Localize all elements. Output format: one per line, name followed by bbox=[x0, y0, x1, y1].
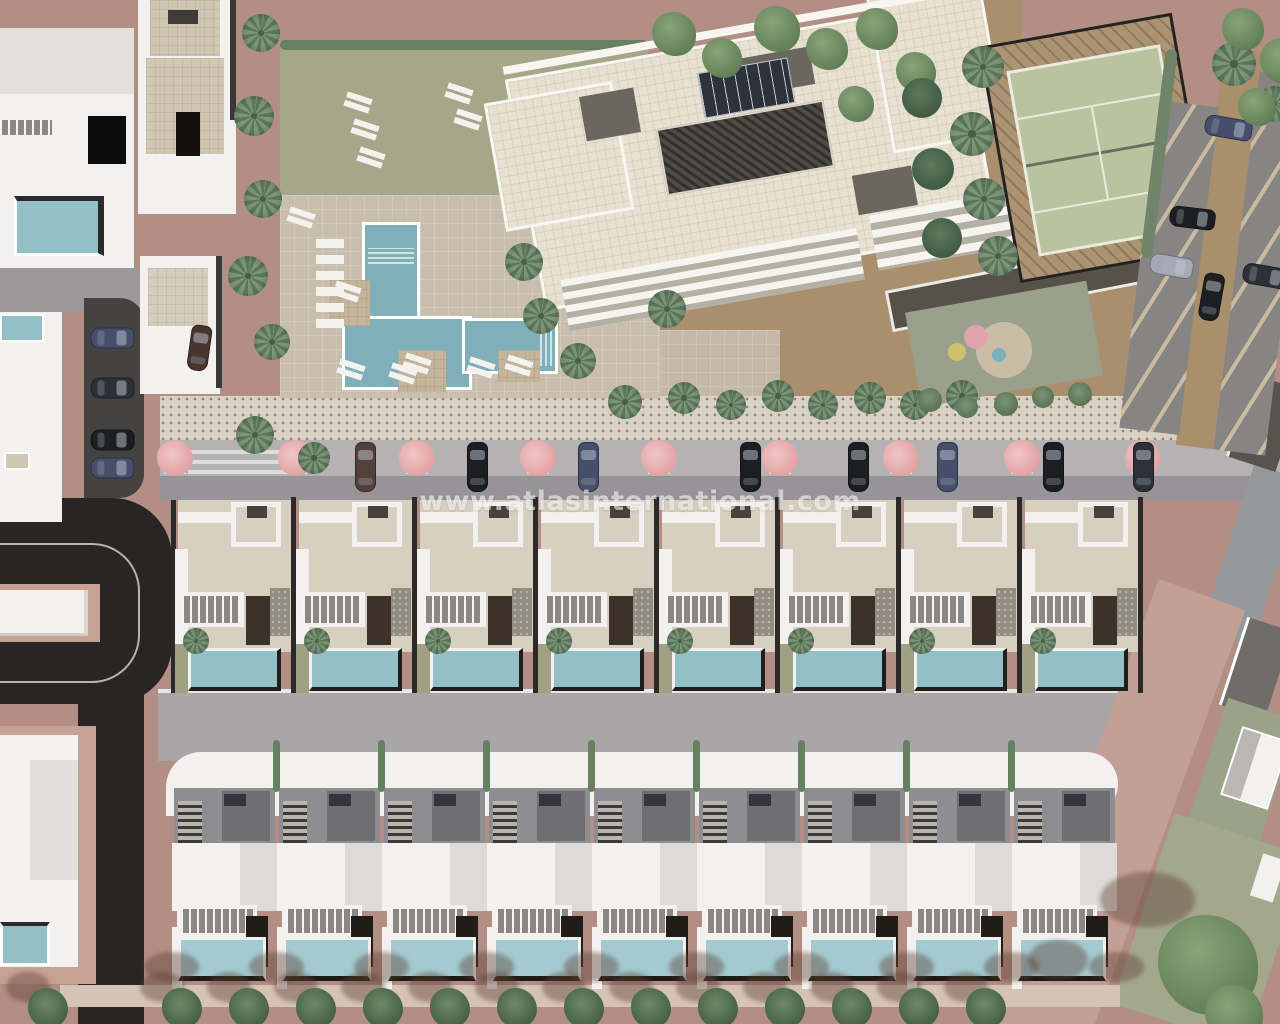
palm-tree-icon bbox=[963, 178, 1005, 220]
cypress-tree-icon bbox=[922, 218, 962, 258]
cypress-tree-icon bbox=[902, 78, 942, 118]
car-rear-window bbox=[98, 331, 105, 346]
palm-tree-icon bbox=[854, 382, 886, 414]
car-rear-window bbox=[743, 478, 758, 485]
villa-door bbox=[730, 596, 754, 645]
villa-stairs bbox=[598, 801, 622, 843]
tree-shadow bbox=[1100, 872, 1195, 927]
street-empty-bay-stripes bbox=[188, 446, 288, 474]
villa-door bbox=[1093, 596, 1117, 645]
hedge-separator bbox=[798, 740, 805, 792]
villa-stone-accent bbox=[996, 588, 1016, 636]
villa-pool bbox=[1035, 648, 1128, 691]
bush-icon bbox=[918, 388, 942, 412]
villa-garden-strip bbox=[780, 644, 793, 693]
villa-door bbox=[367, 596, 391, 645]
middle-row-villa bbox=[780, 497, 901, 693]
palm-tree-icon bbox=[667, 628, 693, 654]
communal-pool-upper bbox=[362, 222, 420, 324]
villa-door bbox=[246, 596, 270, 645]
car-icon bbox=[467, 442, 488, 492]
playground-equipment bbox=[992, 348, 1006, 362]
flowering-tree-icon bbox=[883, 440, 919, 476]
middle-road bbox=[158, 693, 1170, 761]
villa-body-shade bbox=[870, 843, 907, 911]
tree-icon bbox=[652, 12, 696, 56]
car-icon bbox=[355, 442, 376, 492]
car-icon bbox=[1043, 442, 1064, 492]
villa-balcony bbox=[178, 592, 244, 627]
car-windshield bbox=[940, 450, 955, 460]
villa-balcony bbox=[662, 592, 728, 627]
car-rear-window bbox=[1210, 118, 1219, 134]
villa-balcony bbox=[1017, 905, 1097, 937]
villa-door bbox=[609, 596, 633, 645]
flowering-tree-icon bbox=[641, 440, 677, 476]
villa-stairs bbox=[1018, 801, 1042, 843]
villa-body-shade bbox=[240, 843, 277, 911]
tree-icon bbox=[1222, 8, 1264, 50]
palm-tree-icon bbox=[298, 442, 330, 474]
palm-tree-icon bbox=[242, 14, 280, 52]
palm-tree-icon bbox=[546, 628, 572, 654]
car-rear-window bbox=[851, 478, 866, 485]
villa-balcony bbox=[420, 592, 486, 627]
car-rear-window bbox=[98, 433, 105, 448]
palm-tree-icon bbox=[523, 298, 559, 334]
palm-tree-icon bbox=[183, 628, 209, 654]
villa-skylight bbox=[224, 794, 246, 806]
villa-balcony bbox=[299, 592, 365, 627]
car-rear-window bbox=[1155, 256, 1164, 272]
palm-tree-icon bbox=[505, 243, 543, 281]
villa-skylight bbox=[539, 794, 561, 806]
villa-stone-accent bbox=[633, 588, 653, 636]
car-rear-window bbox=[358, 478, 373, 485]
car-windshield bbox=[851, 450, 866, 460]
tree-icon bbox=[702, 38, 742, 78]
villa-stair-opening bbox=[247, 506, 267, 518]
flowering-tree-icon bbox=[157, 440, 193, 476]
villa-stairs bbox=[388, 801, 412, 843]
tree-shadow bbox=[1089, 952, 1144, 982]
car-rear-window bbox=[1046, 478, 1061, 485]
palm-tree-icon bbox=[668, 382, 700, 414]
villa-balcony bbox=[597, 905, 677, 937]
villa-stairs bbox=[283, 801, 307, 843]
bush-icon bbox=[956, 396, 978, 418]
villa-balcony bbox=[492, 905, 572, 937]
palm-tree-icon bbox=[228, 256, 268, 296]
flowering-tree-icon bbox=[520, 440, 556, 476]
villa-stone-accent bbox=[1117, 588, 1137, 636]
villa-party-wall bbox=[1138, 497, 1143, 693]
palm-tree-icon bbox=[950, 112, 994, 156]
villa-skylight bbox=[854, 794, 876, 806]
palm-tree-icon bbox=[608, 385, 642, 419]
car-icon bbox=[91, 430, 135, 451]
villa-door bbox=[851, 596, 875, 645]
middle-row-villa bbox=[175, 497, 296, 693]
playground-equipment bbox=[948, 343, 966, 361]
car-windshield bbox=[193, 332, 209, 344]
palm-tree-icon bbox=[648, 290, 686, 328]
car-rear-window bbox=[470, 478, 485, 485]
car-icon bbox=[1133, 442, 1154, 492]
bush-icon bbox=[1068, 382, 1092, 406]
beige-annex-roof bbox=[148, 268, 208, 326]
car-icon bbox=[848, 442, 869, 492]
villa-stone-accent bbox=[270, 588, 290, 636]
middle-row-villa bbox=[296, 497, 417, 693]
villa-balcony bbox=[912, 905, 992, 937]
villa-pool bbox=[793, 648, 886, 691]
flowering-tree-icon bbox=[1004, 440, 1040, 476]
villa-pool bbox=[914, 648, 1007, 691]
left-building-b-pool bbox=[0, 314, 44, 342]
island-building bbox=[0, 590, 88, 636]
villa-skylight bbox=[749, 794, 771, 806]
villa-balcony bbox=[783, 592, 849, 627]
car-windshield bbox=[1046, 450, 1061, 460]
flowering-tree-icon bbox=[762, 440, 798, 476]
apartment-courtyard-a bbox=[579, 88, 641, 142]
car-windshield bbox=[117, 331, 127, 346]
beige-building-window bbox=[168, 10, 198, 24]
villa-balcony bbox=[807, 905, 887, 937]
hedge-separator bbox=[588, 740, 595, 792]
villa-body-shade bbox=[345, 843, 382, 911]
car-icon bbox=[91, 458, 135, 479]
villa-balcony bbox=[177, 905, 257, 937]
car-windshield bbox=[117, 381, 127, 396]
aerial-render-scene: www.atlasinternational.com bbox=[0, 0, 1280, 1024]
villa-stone-accent bbox=[512, 588, 532, 636]
tree-icon bbox=[838, 86, 874, 122]
middle-row-villa bbox=[901, 497, 1022, 693]
bottom-left-house-shade bbox=[30, 760, 78, 880]
villa-stair-opening bbox=[368, 506, 388, 518]
villa-skylight bbox=[959, 794, 981, 806]
villa-pool bbox=[309, 648, 402, 691]
villa-garden-strip bbox=[175, 644, 188, 693]
hedge-separator bbox=[483, 740, 490, 792]
palm-tree-icon bbox=[425, 628, 451, 654]
middle-row-villa bbox=[538, 497, 659, 693]
villa-balcony bbox=[904, 592, 970, 627]
villa-body-shade bbox=[660, 843, 697, 911]
car-windshield bbox=[1205, 280, 1222, 292]
car-windshield bbox=[117, 461, 127, 476]
tree-icon bbox=[754, 6, 800, 52]
left-building-a-shade bbox=[0, 28, 134, 94]
hedge-separator bbox=[273, 740, 280, 792]
car-rear-window bbox=[940, 478, 955, 485]
car-windshield bbox=[470, 450, 485, 460]
palm-tree-icon bbox=[788, 628, 814, 654]
palm-tree-icon bbox=[1030, 628, 1056, 654]
car-rear-window bbox=[1201, 306, 1217, 315]
car-rear-window bbox=[1248, 266, 1257, 282]
car-rear-window bbox=[581, 478, 596, 485]
villa-body-shade bbox=[555, 843, 592, 911]
car-rear-window bbox=[98, 381, 105, 396]
bush-icon bbox=[1032, 386, 1054, 408]
palm-tree-icon bbox=[304, 628, 330, 654]
tree-icon bbox=[806, 28, 848, 70]
palm-tree-icon bbox=[560, 343, 596, 379]
hedge-separator bbox=[378, 740, 385, 792]
car-icon bbox=[91, 378, 135, 399]
villa-stone-accent bbox=[754, 588, 774, 636]
palm-tree-icon bbox=[909, 628, 935, 654]
palm-tree-icon bbox=[762, 380, 794, 412]
villa-garden-strip bbox=[538, 644, 551, 693]
villa-pool bbox=[672, 648, 765, 691]
watermark: www.atlasinternational.com bbox=[419, 486, 861, 517]
pool-steps bbox=[368, 248, 414, 264]
hedge-separator bbox=[1008, 740, 1015, 792]
car-windshield bbox=[1197, 211, 1209, 227]
car-icon bbox=[937, 442, 958, 492]
villa-garden-strip bbox=[901, 644, 914, 693]
villa-skylight bbox=[644, 794, 666, 806]
villa-balcony bbox=[282, 905, 362, 937]
car-icon bbox=[578, 442, 599, 492]
car-rear-window bbox=[98, 461, 105, 476]
tree-icon bbox=[1238, 88, 1276, 126]
hedge-separator bbox=[693, 740, 700, 792]
villa-stone-accent bbox=[875, 588, 895, 636]
car-windshield bbox=[1233, 122, 1245, 139]
villa-stairs bbox=[493, 801, 517, 843]
car-icon bbox=[91, 328, 135, 349]
villa-stairs bbox=[808, 801, 832, 843]
palm-tree-icon bbox=[978, 236, 1018, 276]
villa-stairs bbox=[178, 801, 202, 843]
car-windshield bbox=[743, 450, 758, 460]
car-windshield bbox=[358, 450, 373, 460]
car-windshield bbox=[1174, 259, 1186, 276]
villa-balcony bbox=[387, 905, 467, 937]
bush-icon bbox=[994, 392, 1018, 416]
villa-stair-opening bbox=[973, 506, 993, 518]
car-rear-window bbox=[1136, 478, 1151, 485]
beige-building-door bbox=[176, 112, 200, 156]
cypress-tree-icon bbox=[912, 148, 954, 190]
left-building-a-pool bbox=[14, 196, 104, 256]
villa-balcony bbox=[1025, 592, 1091, 627]
car-windshield bbox=[581, 450, 596, 460]
left-building-b bbox=[0, 312, 62, 522]
palm-tree-icon bbox=[808, 390, 838, 420]
middle-row-villa bbox=[659, 497, 780, 693]
palm-tree-icon bbox=[234, 96, 274, 136]
playground-equipment bbox=[964, 325, 988, 349]
hedge-separator bbox=[903, 740, 910, 792]
villa-garden-strip bbox=[659, 644, 672, 693]
car-icon bbox=[740, 442, 761, 492]
tree-icon bbox=[856, 8, 898, 50]
beige-annex-gap bbox=[216, 256, 222, 388]
tree-shadow bbox=[1028, 940, 1088, 980]
villa-pool bbox=[551, 648, 644, 691]
villa-stairs bbox=[703, 801, 727, 843]
villa-door bbox=[972, 596, 996, 645]
villa-balcony bbox=[541, 592, 607, 627]
lounger-column bbox=[316, 232, 344, 328]
villa-stairs bbox=[913, 801, 937, 843]
villa-skylight bbox=[1064, 794, 1086, 806]
palm-tree-icon bbox=[236, 416, 274, 454]
car-rear-window bbox=[190, 356, 206, 365]
villa-pool bbox=[188, 648, 281, 691]
middle-row-villa bbox=[417, 497, 538, 693]
villa-skylight bbox=[329, 794, 351, 806]
palm-tree-icon bbox=[716, 390, 746, 420]
beige-building-gap bbox=[230, 0, 236, 120]
left-building-a-door bbox=[88, 116, 126, 164]
left-building-b-window bbox=[4, 452, 30, 470]
villa-body-shade bbox=[975, 843, 1012, 911]
villa-door bbox=[488, 596, 512, 645]
palm-tree-icon bbox=[244, 180, 282, 218]
villa-garden-strip bbox=[296, 644, 309, 693]
villa-body-shade bbox=[450, 843, 487, 911]
beige-building-top-roof2 bbox=[150, 0, 220, 56]
villa-body-shade bbox=[765, 843, 802, 911]
villa-garden-strip bbox=[417, 644, 430, 693]
villa-stair-opening bbox=[1094, 506, 1114, 518]
car-windshield bbox=[117, 433, 127, 448]
flowering-tree-icon bbox=[399, 440, 435, 476]
car-windshield bbox=[1269, 269, 1280, 286]
villa-pool bbox=[430, 648, 523, 691]
palm-tree-icon bbox=[962, 46, 1004, 88]
villa-stone-accent bbox=[391, 588, 411, 636]
car-rear-window bbox=[1176, 209, 1185, 225]
left-building-a-railing bbox=[0, 120, 52, 135]
palm-tree-icon bbox=[254, 324, 290, 360]
villa-balcony bbox=[702, 905, 782, 937]
car-windshield bbox=[1136, 450, 1151, 460]
villa-skylight bbox=[434, 794, 456, 806]
middle-row-villa bbox=[1022, 497, 1143, 693]
bottom-left-pool bbox=[0, 922, 50, 966]
villa-garden-strip bbox=[1022, 644, 1035, 693]
